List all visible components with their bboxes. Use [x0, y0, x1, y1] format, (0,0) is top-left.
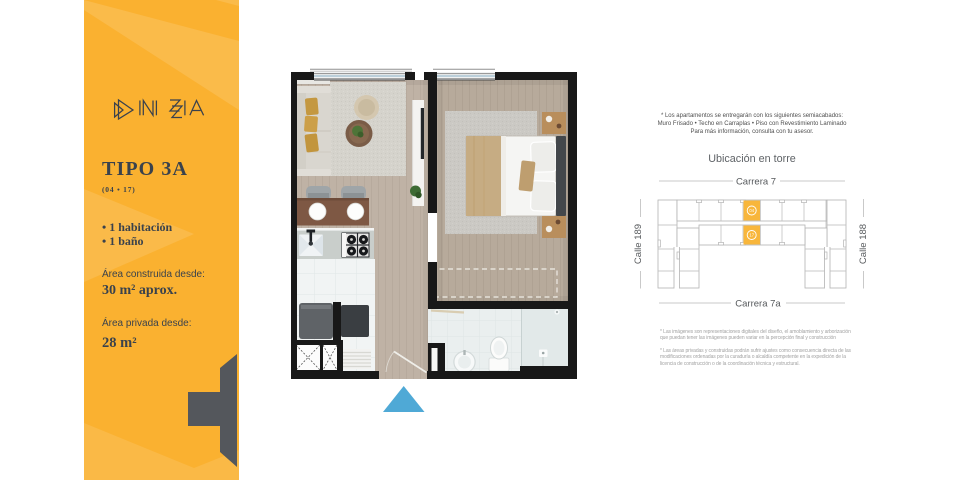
svg-text:Carrera 7a: Carrera 7a: [735, 299, 781, 310]
svg-text:04: 04: [749, 208, 754, 213]
svg-text:Calle 188: Calle 188: [858, 224, 869, 264]
svg-text:Carrera 7: Carrera 7: [736, 177, 776, 188]
svg-text:17: 17: [749, 233, 754, 238]
svg-text:Calle 189: Calle 189: [633, 224, 644, 264]
